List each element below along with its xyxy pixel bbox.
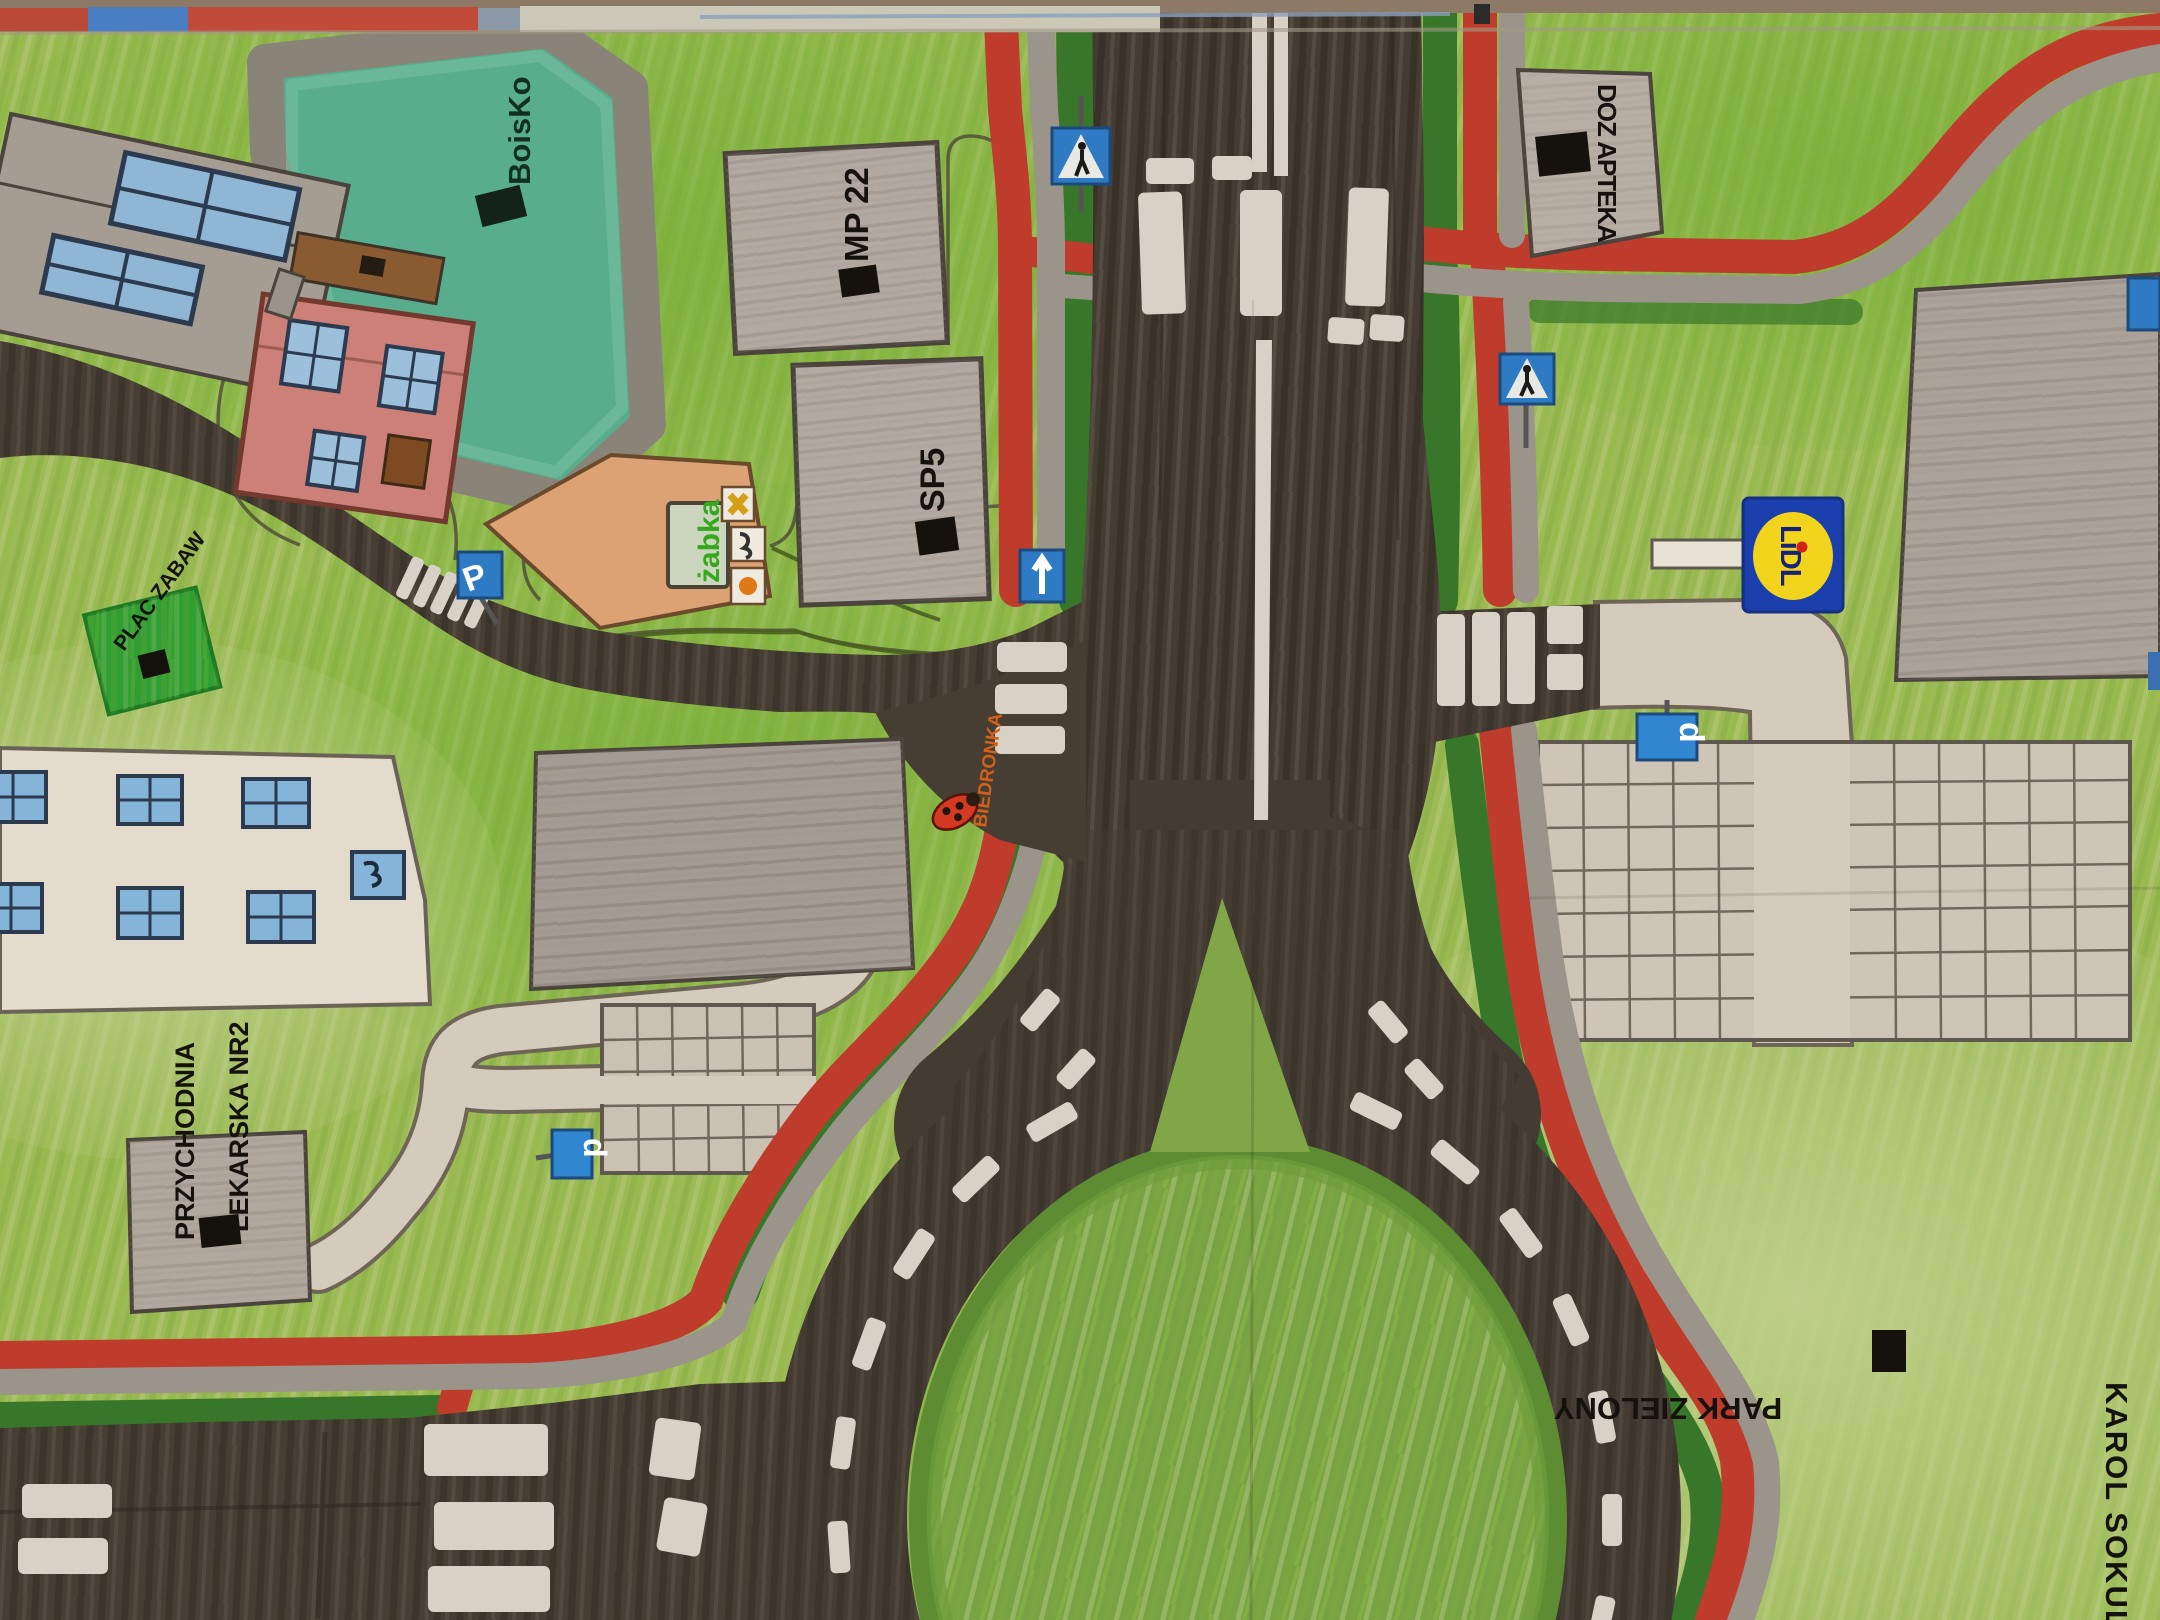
svg-text:SP5: SP5 <box>914 448 952 512</box>
svg-text:LiDL: LiDL <box>1774 525 1806 586</box>
svg-text:LEKARSKA NR2: LEKARSKA NR2 <box>224 1021 254 1232</box>
svg-text:MP 22: MP 22 <box>838 167 875 262</box>
svg-text:PARK ZIELONY: PARK ZIELONY <box>1553 1391 1782 1426</box>
svg-text:BoisKo: BoisKo <box>502 77 537 186</box>
svg-text:PRZYCHODNIA: PRZYCHODNIA <box>170 1042 200 1240</box>
svg-text:d: d <box>577 1138 613 1158</box>
svg-text:KAROL SOKULSKI: KAROL SOKULSKI <box>2099 1382 2134 1620</box>
svg-text:d: d <box>1672 722 1710 743</box>
svg-text:DOZ APTEKA: DOZ APTEKA <box>1592 84 1622 243</box>
